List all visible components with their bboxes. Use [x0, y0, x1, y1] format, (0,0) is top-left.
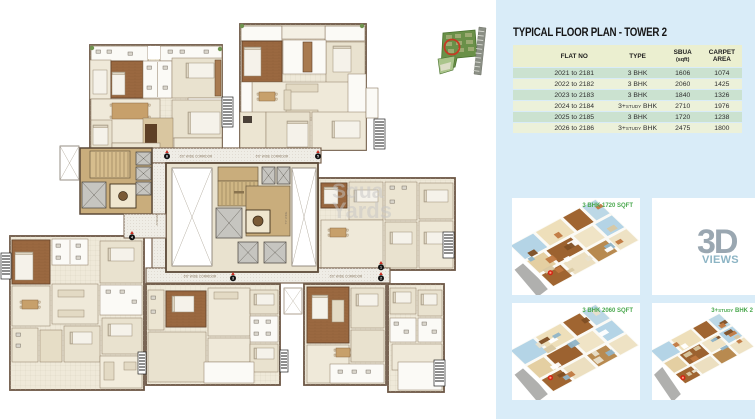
svg-text:6: 6 [166, 154, 168, 158]
svg-text:ATRIUM: ATRIUM [155, 214, 159, 226]
svg-text:Yards: Yards [332, 198, 392, 223]
svg-text:2: 2 [380, 276, 382, 280]
svg-text:6'6" WIDE CORRIDOR: 6'6" WIDE CORRIDOR [184, 275, 217, 279]
svg-text:7'0" WIDE: 7'0" WIDE [284, 212, 288, 225]
svg-text:6'6" WIDE CORRIDOR: 6'6" WIDE CORRIDOR [256, 155, 289, 159]
svg-text:6'6" WIDE CORRIDOR: 6'6" WIDE CORRIDOR [180, 155, 213, 159]
svg-text:5: 5 [317, 154, 319, 158]
svg-text:6'6" WIDE CORRIDOR: 6'6" WIDE CORRIDOR [330, 275, 363, 279]
svg-text:1: 1 [380, 265, 382, 269]
svg-text:3: 3 [232, 276, 234, 280]
svg-text:4: 4 [131, 235, 133, 239]
